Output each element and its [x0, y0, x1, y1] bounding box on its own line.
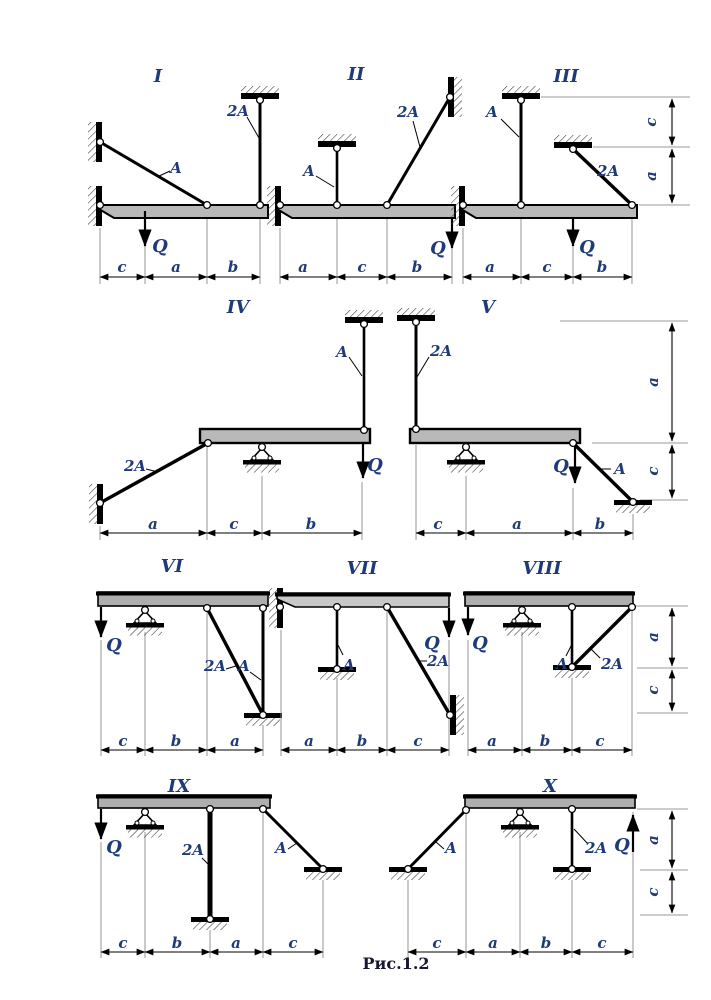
dim-label: b — [228, 258, 239, 276]
pin-joint — [97, 500, 104, 507]
vdim-label: c — [642, 117, 660, 126]
dim-label: a — [512, 515, 522, 533]
rod-2a-label: 2A — [600, 655, 623, 673]
leader-line — [501, 119, 519, 137]
dim-label: b — [597, 258, 608, 276]
rod-2a-label: 2A — [123, 457, 146, 475]
dim-label: b — [357, 732, 368, 750]
leader-line — [436, 842, 444, 849]
load-label: Q — [579, 237, 595, 258]
floor-anchor — [553, 866, 591, 880]
rod-2a — [100, 443, 208, 503]
beam — [277, 205, 455, 218]
dim-label: a — [488, 934, 498, 952]
variant-i: c a b I A 2A Q — [88, 66, 279, 284]
pin-joint — [460, 202, 467, 209]
pin-joint — [205, 440, 212, 447]
pin-joint — [629, 604, 636, 611]
pin-joint — [207, 806, 214, 813]
variant-title: VIII — [522, 558, 562, 579]
variant-title: I — [153, 66, 163, 87]
variant-title: II — [347, 64, 365, 85]
dim-label: b — [172, 934, 183, 952]
pin-joint — [260, 605, 267, 612]
vdim-label: c — [644, 466, 662, 475]
pin-joint — [204, 202, 211, 209]
vertical-dimension: a c — [637, 809, 688, 915]
pin-joint — [629, 202, 636, 209]
dim-label: a — [485, 258, 495, 276]
rod-2a-label: 2A — [584, 839, 607, 857]
dim-label: c — [229, 515, 238, 533]
dim-label: b — [306, 515, 317, 533]
dimension-row: a c b — [463, 218, 632, 284]
variant-title: VII — [347, 558, 378, 579]
pin-joint — [570, 146, 577, 153]
dim-label: c — [118, 732, 127, 750]
variant-viii: a b c a c VIII A 2A Q — [463, 558, 688, 756]
dim-label: b — [541, 934, 552, 952]
dimension-row: a c b — [280, 218, 452, 284]
rod-2a-label: 2A — [203, 657, 226, 675]
variant-title: III — [552, 66, 579, 87]
floor-anchor — [389, 866, 427, 880]
figure-caption: Рис.1.2 — [362, 954, 429, 973]
load-label: Q — [553, 456, 569, 477]
dim-label: a — [304, 732, 314, 750]
dim-label: c — [432, 934, 441, 952]
leader-line — [226, 666, 236, 669]
variant-ii: a c b II A 2A Q — [267, 64, 462, 284]
rod-a — [408, 810, 466, 869]
rod-a-label: A — [168, 159, 182, 177]
pin-joint — [260, 806, 267, 813]
dim-label: c — [357, 258, 366, 276]
vdim-label: a — [644, 632, 662, 642]
pin-joint — [463, 807, 470, 814]
vdim-label: a — [644, 377, 662, 387]
pinned-support — [501, 809, 539, 838]
variant-v: c a b a c V 2A A Q — [397, 297, 688, 540]
leader-line — [413, 121, 420, 147]
vdim-label: a — [642, 171, 660, 181]
rod-a-label: A — [554, 655, 568, 673]
structural-schemes-figure: c a b I A 2A Q a c b II A 2A Q — [0, 0, 711, 1000]
pin-joint — [569, 604, 576, 611]
rod-2a-label: 2A — [596, 162, 619, 180]
dim-label: c — [542, 258, 551, 276]
vdim-label: c — [644, 887, 662, 896]
variant-ix: c b a c IX 2A A Q — [96, 776, 342, 958]
beam — [461, 205, 637, 218]
pin-joint — [570, 440, 577, 447]
variant-vi: c b a VI 2A A Q — [96, 556, 282, 756]
dimension-row: c a b — [100, 218, 260, 284]
pinned-support — [126, 809, 164, 838]
pinned-support — [447, 444, 485, 473]
beam — [410, 429, 580, 443]
variant-title: IV — [226, 297, 251, 318]
dim-label: c — [288, 934, 297, 952]
floor-anchor — [304, 866, 342, 880]
variant-x: c a b c a c X A 2A Q — [389, 776, 688, 958]
leader-line — [157, 171, 170, 177]
load-label: Q — [106, 837, 122, 858]
leader-line — [338, 645, 343, 655]
load-label: Q — [430, 238, 446, 259]
rod-a-label: A — [236, 657, 250, 675]
beam — [200, 429, 370, 443]
pin-joint — [97, 202, 104, 209]
leader-line — [591, 649, 600, 658]
pinned-support — [243, 444, 281, 473]
pinned-support — [503, 607, 541, 636]
pin-joint — [518, 202, 525, 209]
pin-joint — [518, 97, 525, 104]
floor-anchor — [614, 499, 652, 513]
leader-line — [417, 357, 429, 377]
load-label: Q — [614, 835, 630, 856]
pin-joint — [334, 145, 341, 152]
leader-line — [288, 843, 297, 849]
dim-label: a — [230, 732, 240, 750]
pin-joint — [277, 604, 284, 611]
dim-label: b — [171, 732, 182, 750]
dim-label: c — [433, 515, 442, 533]
load-label: Q — [424, 633, 440, 654]
leader-line — [349, 357, 362, 376]
dim-label: a — [231, 934, 241, 952]
rod-2a-label: 2A — [181, 841, 204, 859]
pin-joint — [334, 604, 341, 611]
dim-label: c — [117, 258, 126, 276]
leader-line — [247, 117, 259, 138]
leader-line — [250, 672, 261, 680]
rod-a-label: A — [341, 656, 355, 674]
variant-title: X — [542, 776, 558, 797]
beam — [99, 205, 268, 218]
pin-joint — [413, 426, 420, 433]
load-label: Q — [472, 633, 488, 654]
pin-joint — [97, 139, 104, 146]
vdim-label: c — [644, 685, 662, 694]
dim-label: a — [148, 515, 158, 533]
variant-vii: a b c VII A 2A Q — [269, 558, 464, 756]
rod-2a-label: 2A — [426, 652, 449, 670]
variant-iii: a c b c a III A 2A Q — [451, 66, 690, 284]
dimension-row: c a b — [416, 445, 633, 540]
pin-joint — [204, 605, 211, 612]
pin-joint — [361, 321, 368, 328]
pin-joint — [361, 427, 368, 434]
variant-title: IX — [167, 776, 191, 797]
floor-anchor — [244, 712, 282, 726]
dim-label: c — [413, 732, 422, 750]
variant-iv: a c b IV A 2A Q — [89, 297, 383, 540]
floor-anchor — [191, 916, 229, 930]
rod-a-label: A — [443, 839, 457, 857]
pin-joint — [384, 604, 391, 611]
rod-a-label: A — [273, 839, 287, 857]
rod-2a-label: 2A — [226, 102, 249, 120]
pin-joint — [257, 97, 264, 104]
dim-label: a — [171, 258, 181, 276]
dim-label: b — [595, 515, 606, 533]
vdim-label: a — [644, 835, 662, 845]
rod-a-label: A — [334, 343, 348, 361]
rod-a-label: A — [301, 162, 315, 180]
rod-2a-label: 2A — [429, 342, 452, 360]
pinned-support — [126, 607, 164, 636]
load-label: Q — [106, 635, 122, 656]
leader-line — [316, 176, 334, 187]
dim-label: c — [118, 934, 127, 952]
rod-2a-label: 2A — [396, 103, 419, 121]
pin-joint — [257, 202, 264, 209]
dim-label: c — [597, 934, 606, 952]
dim-label: c — [595, 732, 604, 750]
rod-a — [100, 142, 207, 205]
pin-joint — [447, 712, 454, 719]
figure-page: c a b I A 2A Q a c b II A 2A Q — [0, 0, 711, 1000]
rod-a-label: A — [484, 103, 498, 121]
pin-joint — [413, 319, 420, 326]
dim-label: b — [412, 258, 423, 276]
load-label: Q — [367, 455, 383, 476]
dim-label: a — [298, 258, 308, 276]
dim-label: a — [487, 732, 497, 750]
load-label: Q — [152, 236, 168, 257]
dimension-row: a b c — [281, 610, 449, 756]
pin-joint — [447, 94, 454, 101]
rod-a-label: A — [612, 460, 626, 478]
pin-joint — [277, 202, 284, 209]
variant-title: VI — [161, 556, 184, 577]
dim-label: b — [540, 732, 551, 750]
pin-joint — [384, 202, 391, 209]
pin-joint — [569, 806, 576, 813]
variant-title: V — [481, 297, 497, 318]
pin-joint — [334, 202, 341, 209]
vertical-dimension: a c — [635, 606, 688, 713]
rod-a — [263, 809, 323, 869]
dimension-row: c b a — [101, 610, 263, 756]
